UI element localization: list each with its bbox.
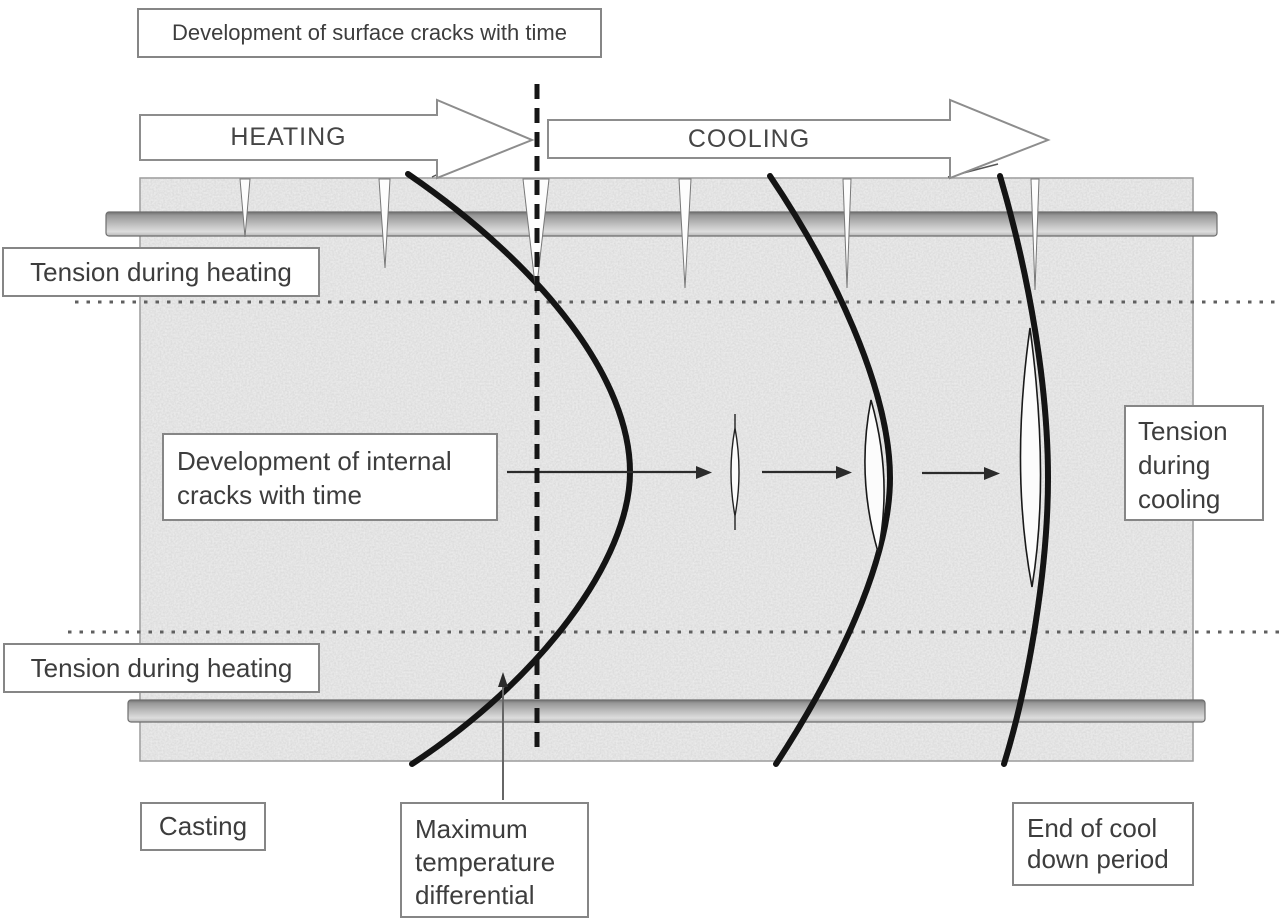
casting-box: Casting — [140, 802, 266, 851]
cooling-phase-label: COOLING — [548, 120, 950, 158]
tension-during-heating-top-box: Tension during heating — [2, 247, 320, 297]
thermal-cracking-diagram: Development of surface cracks with time … — [0, 0, 1280, 919]
tension-during-heating-bottom-box: Tension during heating — [3, 643, 320, 693]
tension-during-cooling-box: Tension during cooling — [1124, 405, 1264, 521]
internal-cracks-box: Development of internal cracks with time — [162, 433, 498, 521]
heating-phase-label: HEATING — [140, 115, 437, 160]
bottom-rebar — [128, 700, 1205, 722]
max-temp-differential-box: Maximum temperature differential — [400, 802, 589, 918]
top-rebar — [106, 212, 1217, 236]
end-cooldown-box: End of cool down period — [1012, 802, 1194, 886]
title-box: Development of surface cracks with time — [137, 8, 602, 58]
